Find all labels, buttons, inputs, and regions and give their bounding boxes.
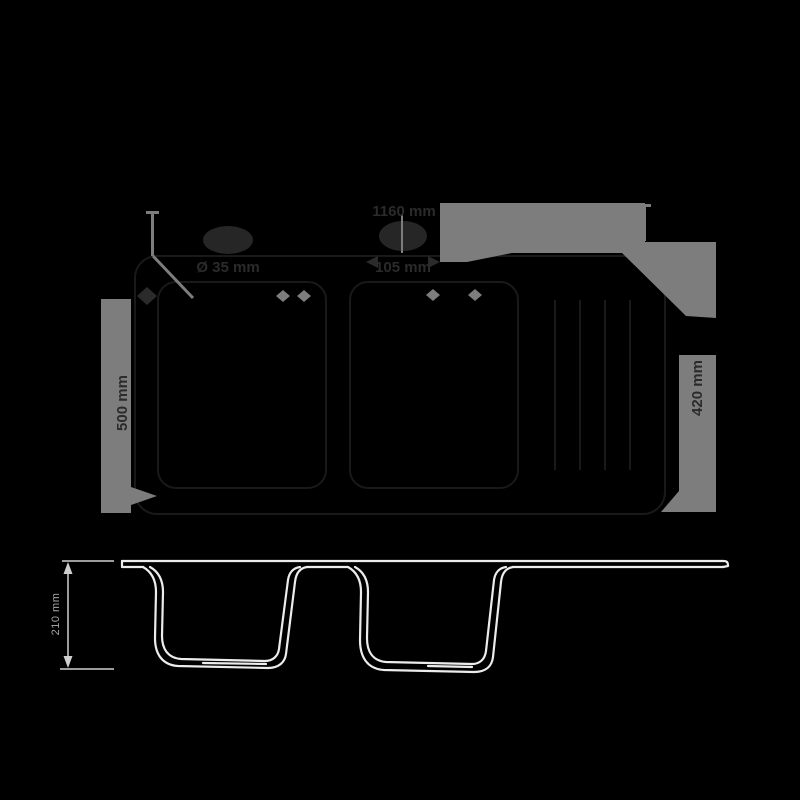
dimension-arrow-up [64,562,73,574]
plan-bowl-left [158,282,326,488]
arrowhead-dark-left [366,256,378,268]
tick-top-right [638,204,651,207]
extension-line-top-left [151,212,154,256]
technical-drawing: 1160 mm 105 mm Ø 35 mm 500 mm 420 mm 210… [0,0,800,800]
tick-top-left [146,211,159,214]
arrowhead-diamond [468,289,482,301]
bowl1-drain-step [203,663,266,664]
depth-left-label: 500 mm [114,375,131,431]
dimension-band-top [440,203,716,318]
depth-right-label: 420 mm [689,360,706,416]
center-dimension-label: 105 mm [375,259,431,276]
tap-hole-label: Ø 35 mm [196,259,259,276]
arrowhead-dark-right [428,256,440,268]
dimension-arrow-down [64,656,73,668]
extension-line-center [401,215,403,253]
arrowhead-diamond [297,290,311,302]
arrowhead-diamond-dark [137,287,157,305]
sink-drawing-canvas: 1160 mm 105 mm Ø 35 mm 500 mm 420 mm 210… [0,0,800,800]
arrowhead-diamond [276,290,290,302]
bowl2-drain-step [428,666,472,667]
plan-outline [135,256,665,514]
plan-bowl-right [350,282,518,488]
depth-dimension-label: 210 mm [50,593,62,636]
arrowhead-diamond [426,289,440,301]
bowl1-inner-wall [150,567,300,661]
overall-width-label: 1160 mm [372,203,435,220]
depth-dimension: 210 mm [50,561,114,669]
extension-line-top-right [643,205,646,241]
section-view: 210 mm [50,561,728,672]
tap-hole-left [203,226,253,254]
arrowhead-left-band [131,487,157,505]
bowl2-inner-wall [355,567,506,664]
